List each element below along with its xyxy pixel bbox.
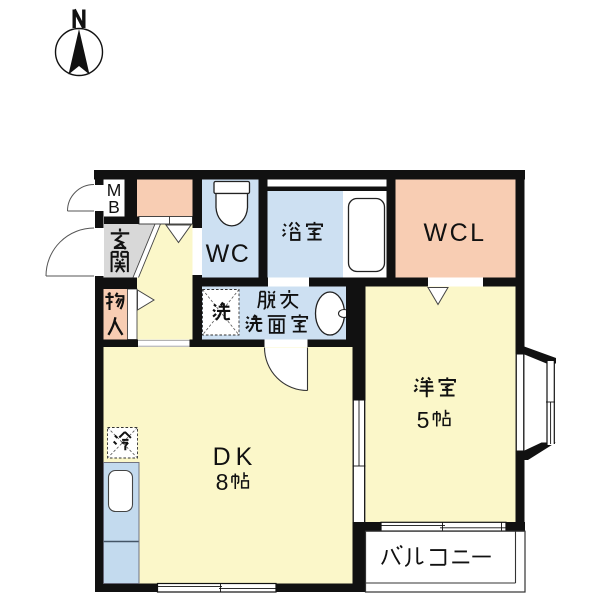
svg-text:DK: DK (213, 443, 258, 471)
svg-text:B: B (108, 197, 120, 217)
svg-text:WCL: WCL (423, 219, 486, 247)
svg-text:5: 5 (417, 407, 430, 433)
svg-text:WC: WC (206, 240, 251, 268)
svg-text:8: 8 (216, 469, 229, 495)
